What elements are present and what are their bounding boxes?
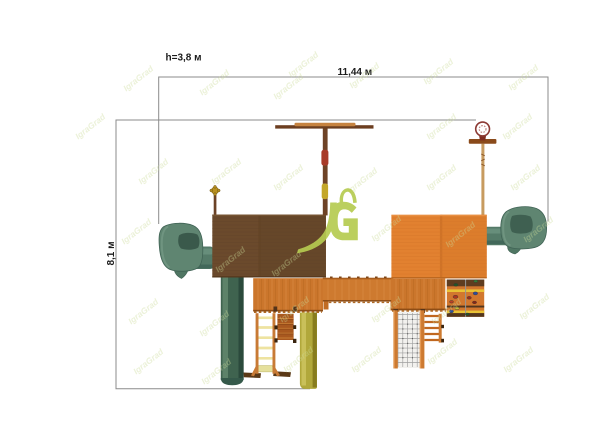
svg-text:h=3,8 м: h=3,8 м	[166, 53, 202, 64]
svg-text:8,1 м: 8,1 м	[106, 241, 117, 265]
